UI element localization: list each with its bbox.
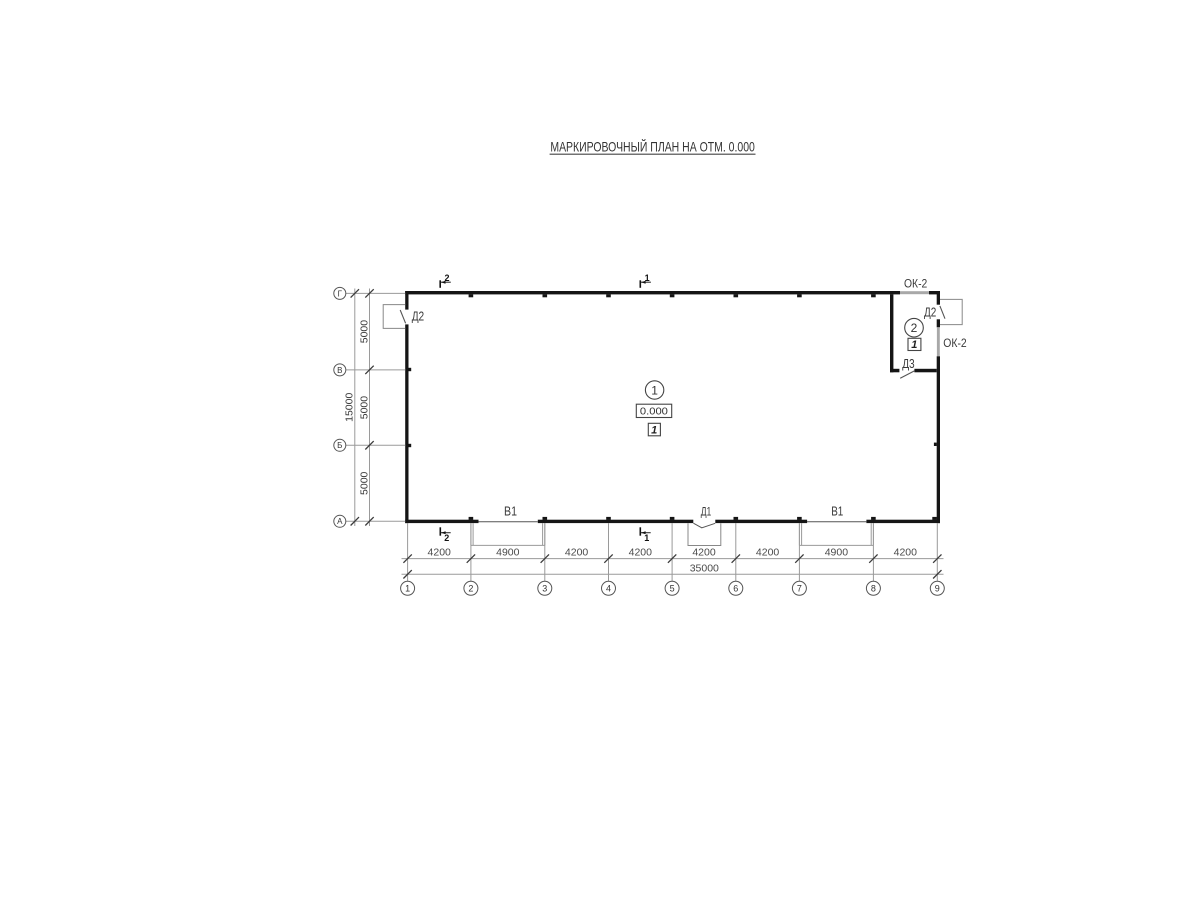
svg-text:6: 6 bbox=[733, 584, 738, 594]
svg-text:3: 3 bbox=[542, 584, 547, 594]
svg-text:4900: 4900 bbox=[496, 547, 520, 559]
svg-text:4200: 4200 bbox=[894, 547, 918, 559]
svg-text:Б: Б bbox=[337, 441, 342, 450]
svg-text:Г: Г bbox=[338, 289, 343, 298]
svg-text:4200: 4200 bbox=[629, 547, 653, 559]
svg-text:1: 1 bbox=[644, 533, 649, 543]
svg-text:В: В bbox=[337, 366, 342, 375]
svg-text:0.000: 0.000 bbox=[640, 406, 668, 418]
svg-text:5000: 5000 bbox=[358, 320, 370, 344]
svg-text:8: 8 bbox=[871, 584, 876, 594]
svg-text:2: 2 bbox=[468, 584, 473, 594]
svg-text:5: 5 bbox=[670, 584, 675, 594]
svg-text:Д3: Д3 bbox=[902, 356, 915, 371]
svg-text:4200: 4200 bbox=[756, 547, 780, 559]
svg-text:В1: В1 bbox=[831, 503, 843, 518]
svg-text:2: 2 bbox=[444, 273, 449, 283]
svg-text:1: 1 bbox=[911, 339, 917, 351]
svg-text:35000: 35000 bbox=[690, 562, 719, 574]
svg-text:2: 2 bbox=[911, 321, 918, 335]
svg-text:МАРКИРОВОЧНЫЙ ПЛАН НА ОТМ. 0.0: МАРКИРОВОЧНЫЙ ПЛАН НА ОТМ. 0.000 bbox=[550, 137, 755, 154]
svg-text:Д1: Д1 bbox=[701, 505, 712, 519]
svg-text:5000: 5000 bbox=[358, 471, 370, 495]
svg-text:4200: 4200 bbox=[565, 547, 589, 559]
svg-text:4: 4 bbox=[606, 584, 611, 594]
svg-text:5000: 5000 bbox=[358, 396, 370, 420]
svg-text:4900: 4900 bbox=[825, 547, 849, 559]
svg-text:1: 1 bbox=[405, 584, 410, 594]
svg-text:4200: 4200 bbox=[692, 547, 716, 559]
svg-text:2: 2 bbox=[444, 533, 449, 543]
svg-text:1: 1 bbox=[651, 424, 657, 436]
svg-text:9: 9 bbox=[935, 584, 940, 594]
svg-text:1: 1 bbox=[645, 273, 650, 283]
svg-text:Д2: Д2 bbox=[924, 305, 936, 320]
svg-text:15000: 15000 bbox=[343, 393, 355, 422]
svg-text:А: А bbox=[337, 517, 343, 526]
svg-text:7: 7 bbox=[797, 584, 802, 594]
svg-text:Д2: Д2 bbox=[412, 308, 425, 323]
svg-text:ОК-2: ОК-2 bbox=[904, 276, 928, 290]
svg-text:ОК-2: ОК-2 bbox=[943, 336, 967, 350]
svg-text:1: 1 bbox=[651, 383, 658, 397]
svg-text:4200: 4200 bbox=[428, 547, 452, 559]
svg-text:В1: В1 bbox=[504, 504, 517, 519]
